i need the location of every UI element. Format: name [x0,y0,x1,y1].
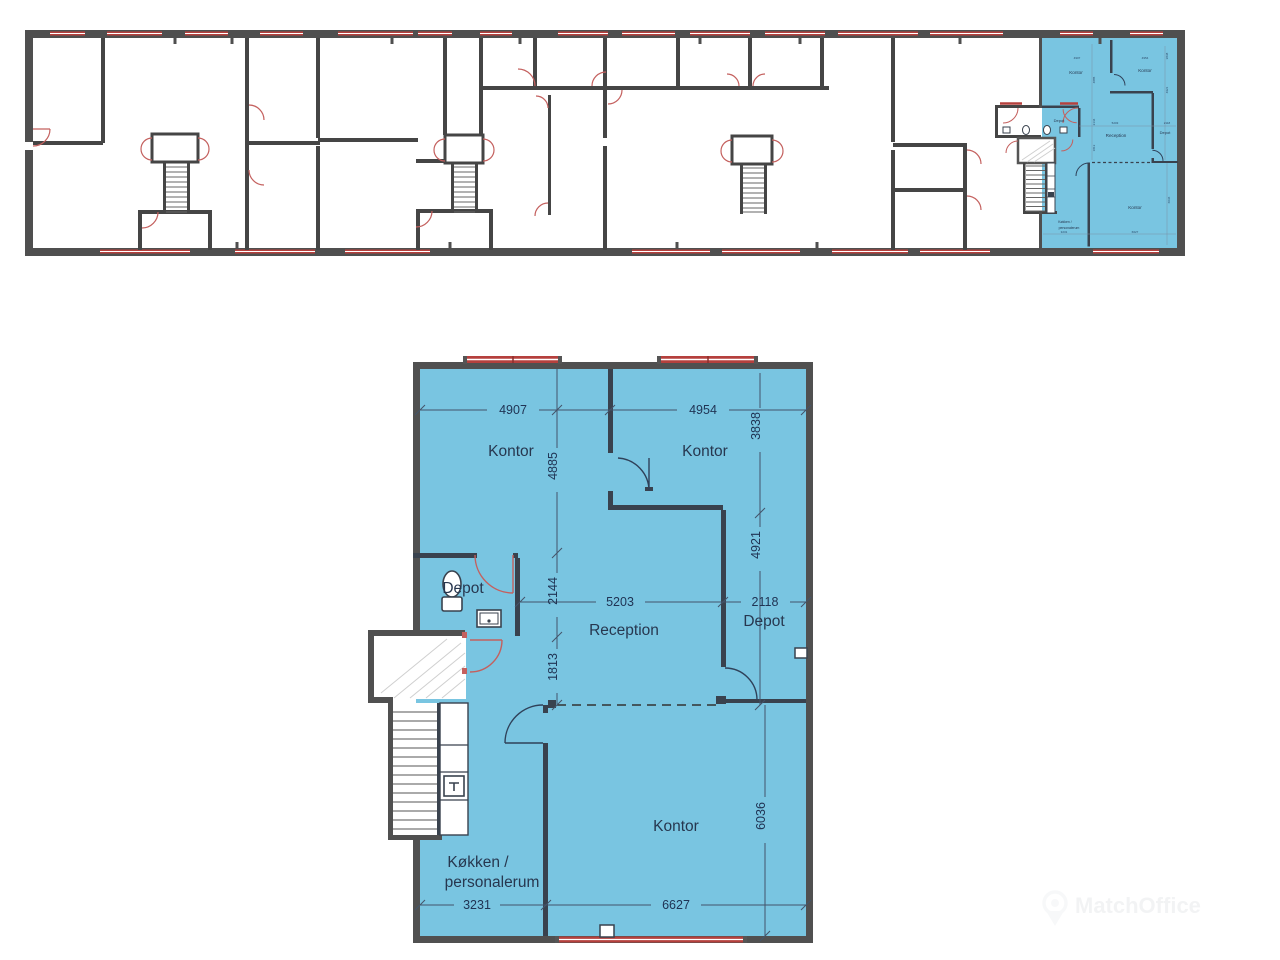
dim-kontor-tl-height: 4885 [546,452,560,480]
dim-depot-right-height: 4921 [749,531,763,559]
ov-dim: 3231 [1061,230,1068,234]
ov-dim: 4885 [1092,76,1096,83]
ov-dim: 1813 [1092,144,1096,151]
ov-label-depot-left: Depot [1054,118,1066,123]
detail-wall-notch [795,648,807,658]
ov-label-kontor-bottom: Kontor [1128,205,1142,210]
watermark-text: MatchOffice [1075,893,1201,918]
location-pin-icon [1044,892,1066,926]
detail-kitchen-cabinets [440,703,468,835]
room-label-kontor-top-right: Kontor [682,443,728,460]
dim-kontor-b-height: 6036 [754,802,768,830]
dim-reception-width: 5203 [606,595,634,609]
overview-stair-4 [1018,138,1057,214]
ov-dim: 4921 [1165,86,1169,93]
room-label-reception: Reception [589,622,659,639]
room-label-kitchen-2: personalerum [445,874,540,891]
ov-label-kontor-top-right: Kontor [1138,68,1152,73]
ov-dim: 4954 [1142,56,1149,60]
room-label-depot-right: Depot [743,613,785,630]
overview-plan: Kontor Kontor Depot Reception Depot Kont… [25,30,1185,256]
ov-dim: 3838 [1165,52,1169,59]
room-label-kontor-top-left: Kontor [488,443,534,460]
dim-kontor-tl-width: 4907 [499,403,527,417]
dim-kontor-tr-height: 3838 [749,412,763,440]
floor-plan-drawing: Kontor Kontor Depot Reception Depot Kont… [0,0,1280,960]
room-label-depot-left: Depot [442,580,484,597]
ov-dim: 5203 [1112,121,1119,125]
floor-plan-page: Kontor Kontor Depot Reception Depot Kont… [0,0,1280,960]
dim-hall-height: 1813 [546,653,560,681]
detail-pillar [600,925,614,937]
ov-label-reception: Reception [1106,133,1127,138]
room-label-kontor-bottom: Kontor [653,818,699,835]
dim-depot-left-height: 2144 [546,577,560,605]
detail-plan: 4907 4954 4885 3838 2144 1813 4921 5203 … [368,356,813,943]
detail-stairs [388,703,442,840]
ov-dim: 6036 [1167,196,1171,203]
dim-kontor-tr-width: 4954 [689,403,717,417]
detail-sink [477,610,501,627]
ov-label-kitchen-1: Køkken / [1058,220,1071,224]
ov-dim: 2118 [1164,121,1171,125]
ov-label-kontor-top-left: Kontor [1069,70,1083,75]
dim-kitchen-width: 3231 [463,898,491,912]
dim-kontor-b-width: 6627 [662,898,690,912]
ov-dim: 2144 [1092,118,1096,125]
ov-dim: 4907 [1074,56,1081,60]
room-label-kitchen-1: Køkken / [447,854,509,871]
dim-depot-right-width: 2118 [752,595,779,609]
detail-landing [368,630,467,703]
ov-dim: 6627 [1132,230,1139,234]
ov-label-depot-right: Depot [1160,130,1172,135]
watermark: MatchOffice [1044,892,1201,926]
